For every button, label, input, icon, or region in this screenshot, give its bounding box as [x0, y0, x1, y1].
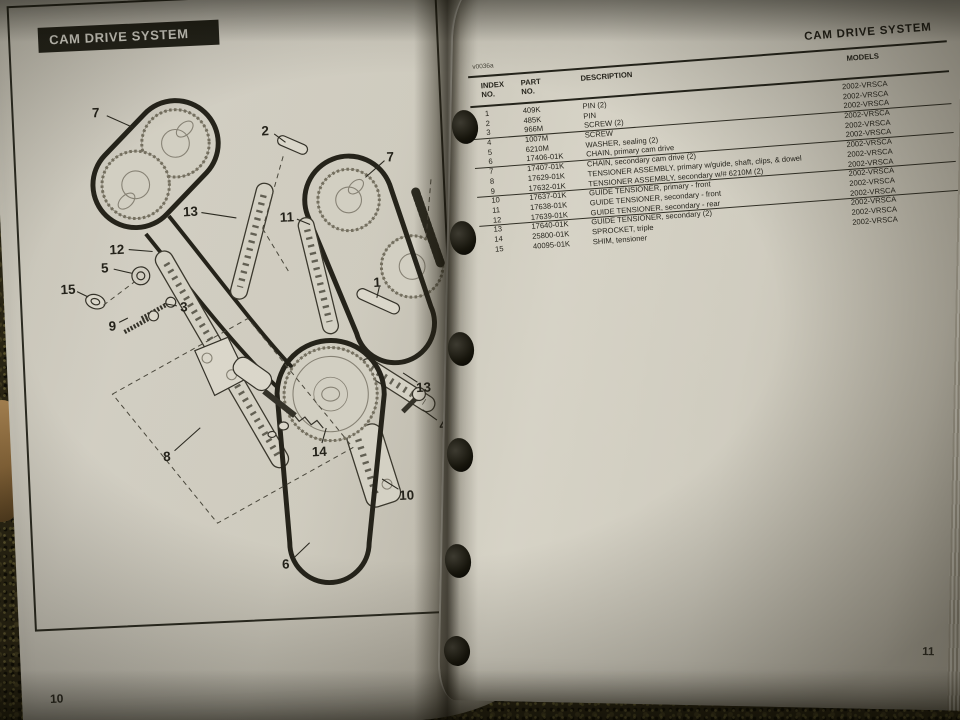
right-page-content: CAM DRIVE SYSTEM v0036a INDEX NO. PART N… — [467, 20, 946, 56]
callout-label-13: 13 — [416, 380, 432, 396]
screw-lower — [124, 311, 160, 332]
cell-index: 8 — [490, 176, 495, 186]
callout-label-6: 6 — [282, 556, 290, 571]
cell-index: 4 — [487, 138, 492, 148]
col-header-part: PART NO. — [520, 78, 541, 97]
callout-leader-6 — [294, 543, 310, 558]
col-header-description: DESCRIPTION — [580, 71, 632, 84]
photo-scene: 727131112515391814134106 CAM DRIVE SYSTE… — [0, 0, 960, 720]
pin-2 — [276, 133, 310, 157]
cell-index: 3 — [486, 128, 491, 138]
callout-leader-15 — [77, 291, 88, 297]
right-page: CAM DRIVE SYSTEM v0036a INDEX NO. PART N… — [437, 0, 960, 711]
callout-label-8: 8 — [163, 449, 172, 464]
cell-index: 2 — [485, 118, 490, 128]
page-header-title: CAM DRIVE SYSTEM — [804, 21, 932, 43]
construction-line — [102, 282, 135, 305]
cell-index: 6 — [488, 157, 493, 167]
diagram-frame: 727131112515391814134106 — [7, 0, 465, 632]
cell-index: 5 — [487, 147, 492, 157]
callout-label-13: 13 — [183, 204, 199, 220]
page-number-right: 11 — [922, 646, 934, 658]
figure-code: v0036a — [472, 62, 494, 71]
callout-leader-8 — [174, 428, 202, 451]
tensioner-shim — [83, 291, 107, 312]
guide-tensioner-top — [229, 182, 275, 301]
section-banner-label: CAM DRIVE SYSTEM — [49, 26, 189, 47]
cell-index: 9 — [490, 186, 495, 196]
diagram-root: 727131112515391814134106 — [52, 89, 457, 594]
callout-label-14: 14 — [312, 444, 328, 460]
callout-leader-5 — [114, 268, 132, 274]
callout-leader-9 — [119, 318, 128, 322]
callout-label-1: 1 — [373, 275, 382, 290]
callout-label-11: 11 — [280, 209, 295, 225]
cell-part: 40095-01K — [533, 239, 571, 251]
callout-label-7: 7 — [386, 149, 394, 164]
cell-index: 15 — [495, 244, 504, 254]
cell-index: 1 — [485, 109, 490, 119]
callout-leader-13 — [201, 211, 236, 219]
callout-label-15: 15 — [60, 282, 76, 298]
callout-label-10: 10 — [399, 487, 415, 503]
cell-index: 7 — [489, 167, 494, 177]
callout-label-12: 12 — [109, 242, 125, 258]
callout-label-9: 9 — [108, 318, 116, 333]
cam-drive-diagram: 727131112515391814134106 — [9, 0, 463, 630]
page-number-left: 10 — [50, 691, 64, 706]
callout-label-7: 7 — [92, 105, 100, 120]
callout-leader-12 — [129, 249, 153, 253]
callout-label-3: 3 — [180, 299, 188, 314]
callout-label-5: 5 — [101, 260, 110, 275]
callout-label-2: 2 — [261, 123, 269, 138]
col-header-index: INDEX NO. — [481, 81, 505, 100]
construction-line — [263, 228, 289, 273]
